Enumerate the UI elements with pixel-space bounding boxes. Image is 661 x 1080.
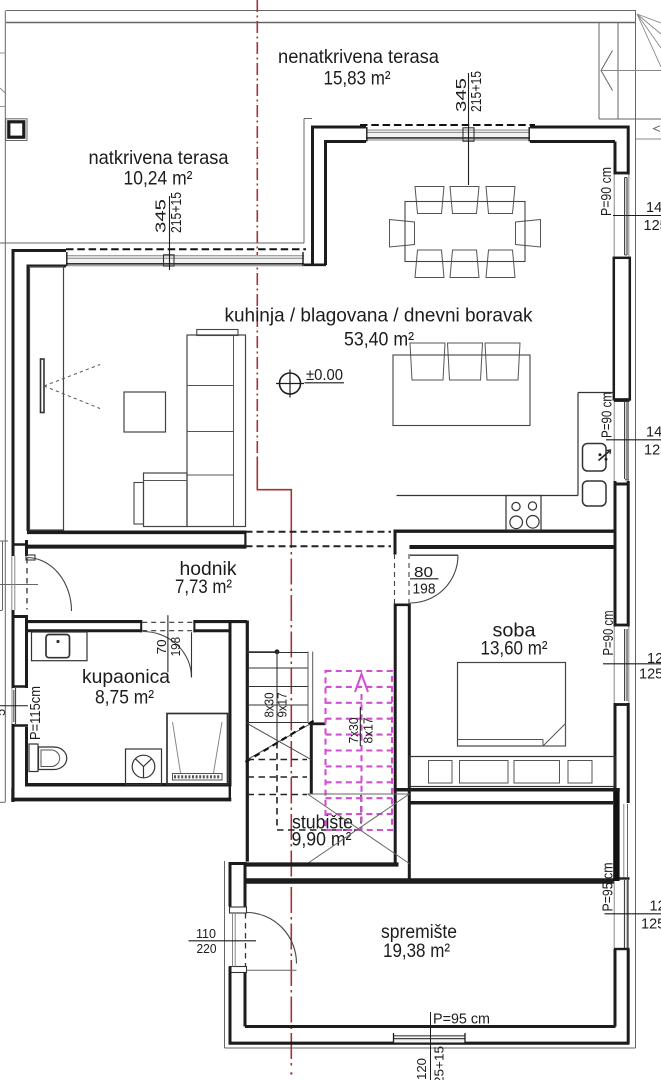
svg-text:125+15: 125+15 [644,443,661,459]
svg-text:140: 140 [646,425,661,441]
svg-text:125+15: 125+15 [639,667,661,683]
svg-text:P=90 cm: P=90 cm [601,611,617,656]
svg-text:120: 120 [647,651,661,667]
svg-text:P=95 cm: P=95 cm [600,863,616,912]
svg-text:53,40 m²: 53,40 m² [344,329,414,351]
svg-text:215+15: 215+15 [168,192,185,233]
svg-text:125+15: 125+15 [641,917,661,933]
svg-text:19,38 m²: 19,38 m² [383,940,450,962]
svg-text:±0.00: ±0.00 [306,367,343,384]
svg-text:P=95 cm: P=95 cm [433,1012,490,1028]
svg-text:215+15: 215+15 [468,71,485,112]
svg-text:25+15: 25+15 [432,1046,447,1080]
svg-text:198: 198 [413,581,436,598]
svg-text:198: 198 [168,637,183,657]
svg-text:120: 120 [414,1058,429,1080]
svg-text:9x17: 9x17 [274,693,289,718]
svg-text:70: 70 [154,639,169,654]
svg-text:345: 345 [153,199,170,233]
svg-text:110: 110 [196,926,216,941]
svg-text:P=90 cm: P=90 cm [599,167,615,216]
svg-text:125+15: 125+15 [644,218,661,234]
svg-text:natkrivena terasa: natkrivena terasa [89,147,229,169]
svg-text:5: 5 [0,709,8,716]
svg-text:7,73 m²: 7,73 m² [175,576,232,598]
svg-text:kuhinja / blagovana / dnevni b: kuhinja / blagovana / dnevni boravak [225,305,533,327]
svg-text:7x30: 7x30 [346,718,361,744]
svg-text:nenatkrivena terasa: nenatkrivena terasa [278,46,439,68]
svg-text:220: 220 [197,941,217,956]
svg-text:P=115cm: P=115cm [28,686,44,740]
svg-text:140: 140 [646,200,661,216]
svg-text:P=90 cm: P=90 cm [600,392,616,438]
svg-text:10,24 m²: 10,24 m² [124,168,193,190]
svg-text:15,83 m²: 15,83 m² [324,68,391,90]
svg-text:13,60 m²: 13,60 m² [481,638,548,660]
svg-text:8,75 m²: 8,75 m² [95,687,154,709]
svg-text:120: 120 [650,899,661,915]
svg-text:kupaonica: kupaonica [82,666,170,688]
svg-text:8x17: 8x17 [360,718,375,744]
